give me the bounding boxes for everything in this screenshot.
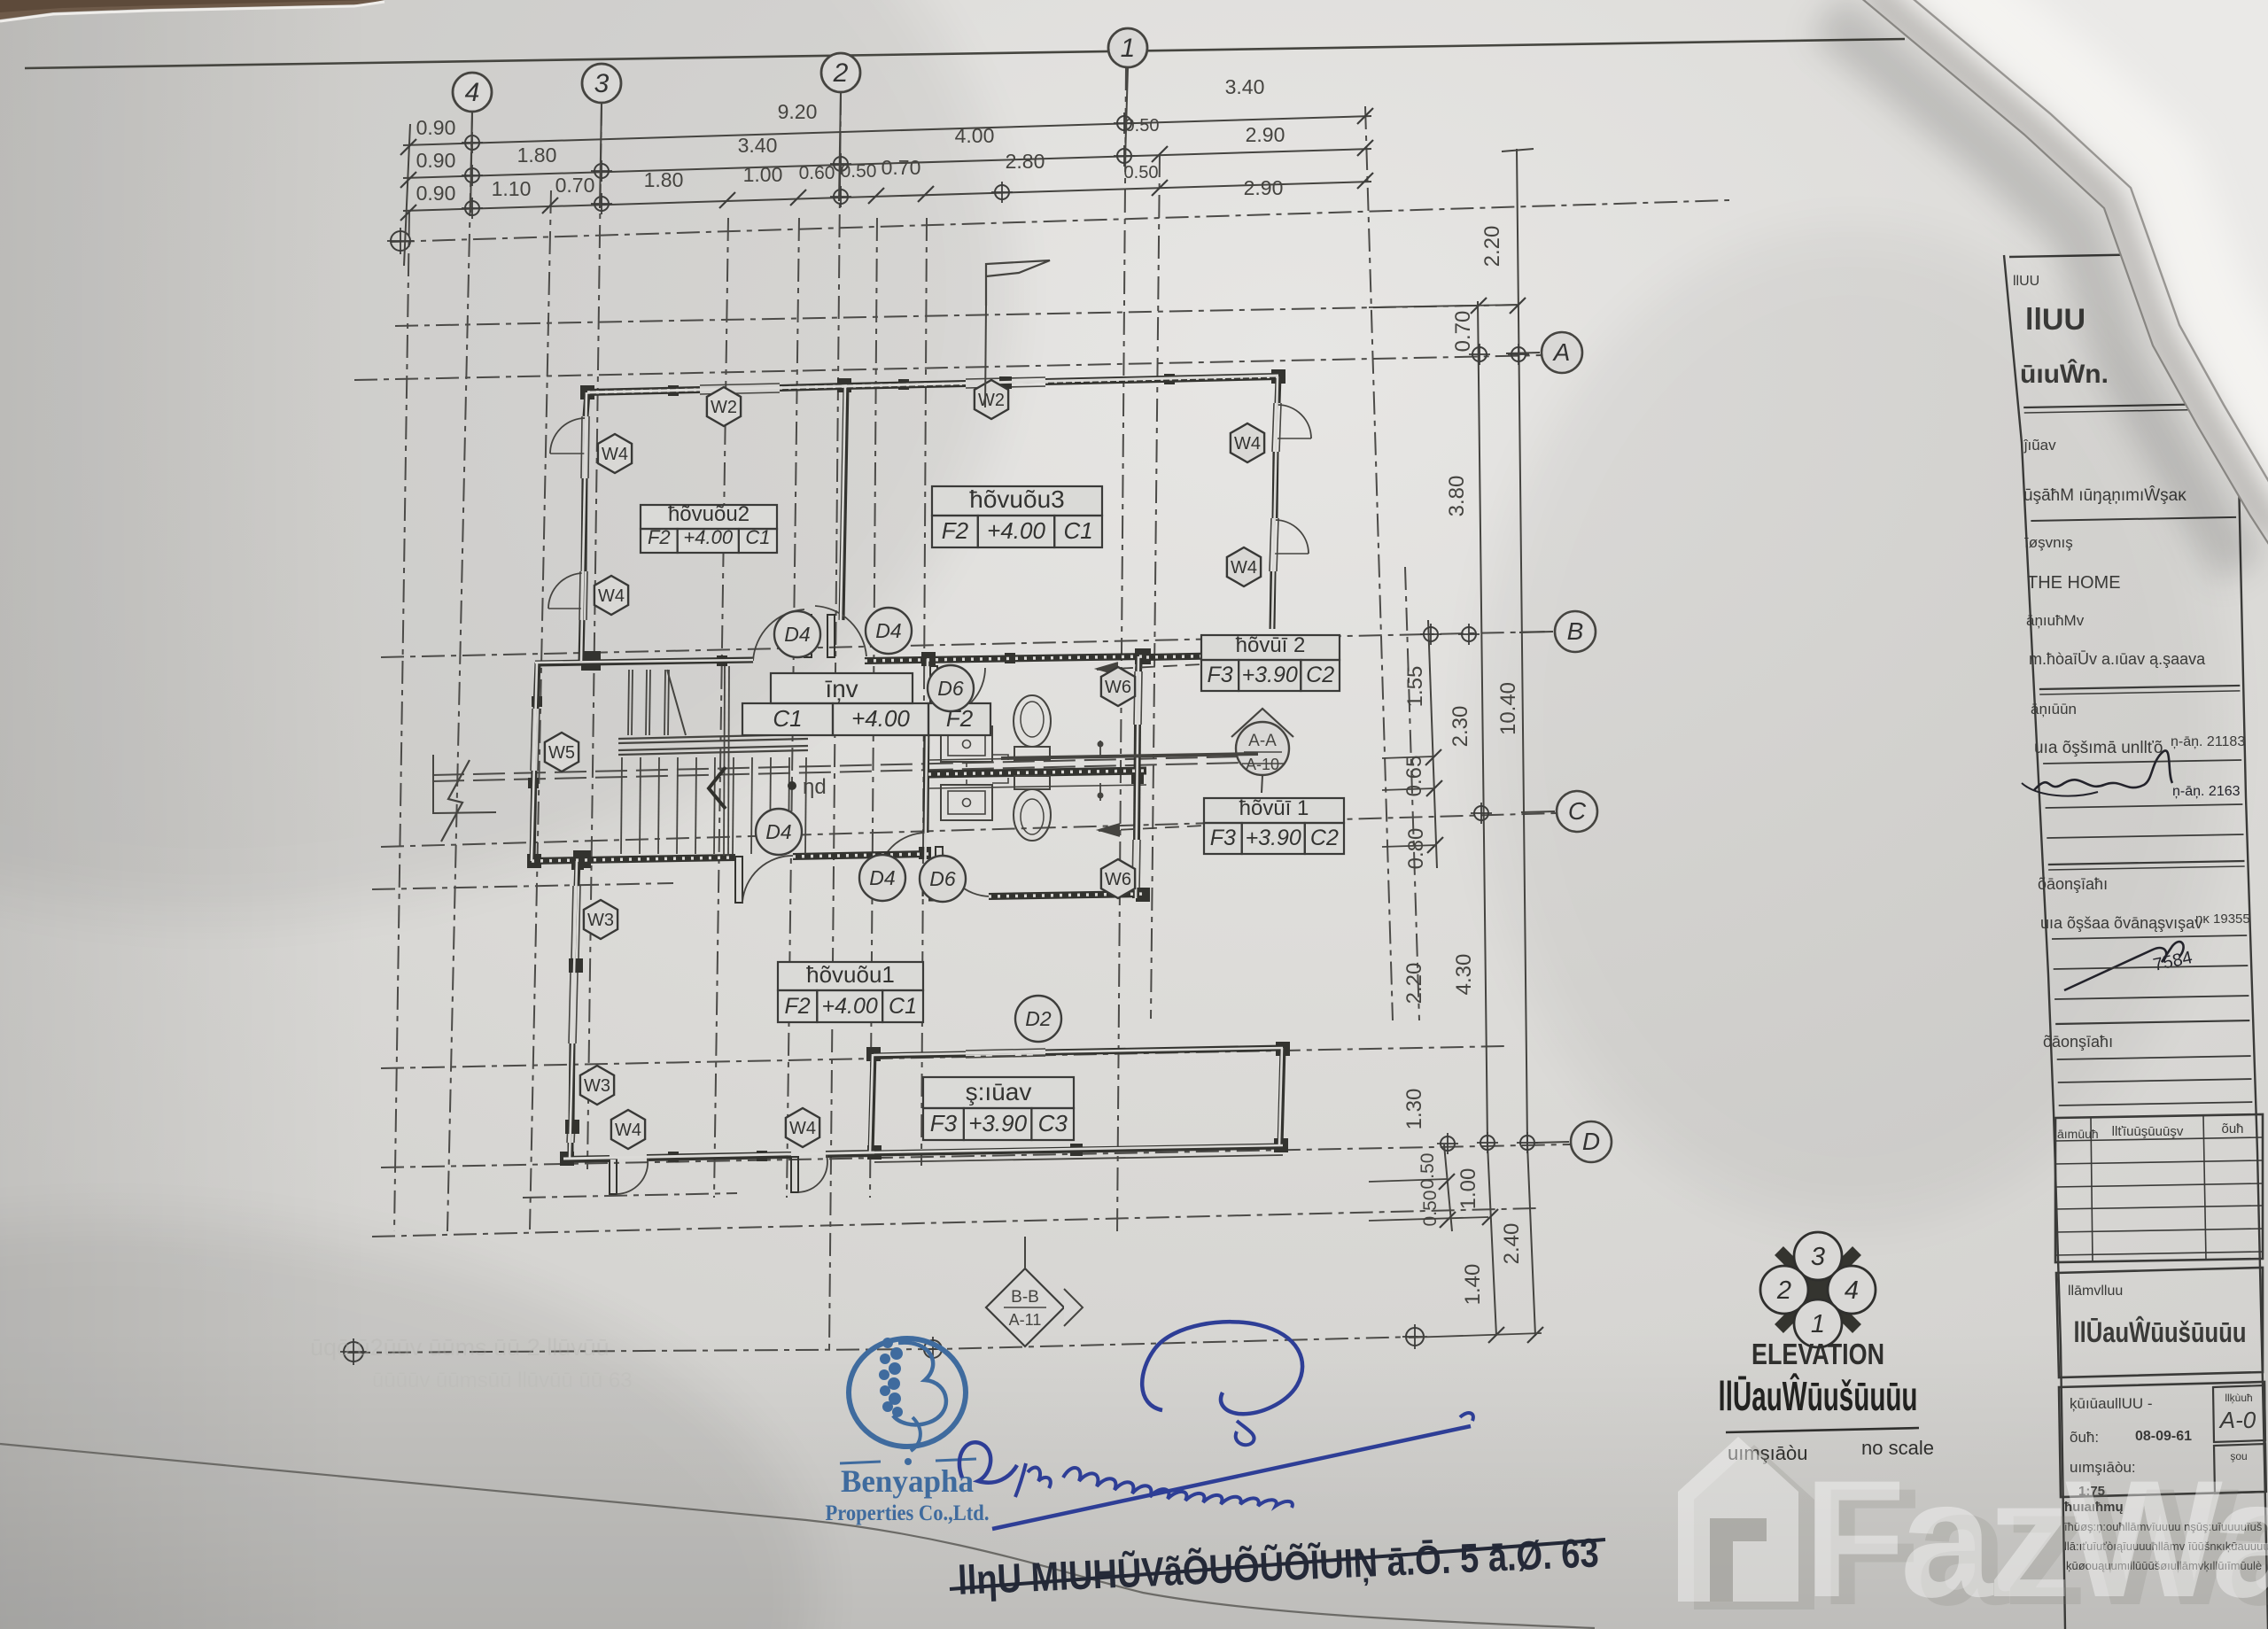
- svg-text:m.ħòaīŪv a.ıūav ą.şaava: m.ħòaīŪv a.ıūav ą.şaava: [2029, 650, 2206, 668]
- svg-text:FazWaz: FazWaz: [1804, 1446, 2268, 1629]
- svg-text:THE HOME: THE HOME: [2027, 573, 2121, 593]
- svg-text:W4: W4: [602, 445, 628, 464]
- svg-text:īņv: īņv: [825, 675, 858, 702]
- svg-text:4: 4: [465, 78, 480, 107]
- svg-text:1.80: 1.80: [644, 168, 684, 191]
- svg-text:08-09-61: 08-09-61: [2135, 1429, 2192, 1444]
- svg-text:W4: W4: [789, 1119, 816, 1138]
- svg-text:īøşvnış: īøşvnış: [2024, 534, 2073, 551]
- svg-text:9.20: 9.20: [778, 100, 818, 123]
- svg-text:2.40: 2.40: [1500, 1223, 1524, 1265]
- svg-text:3.80: 3.80: [1445, 476, 1469, 517]
- svg-text:D6: D6: [929, 867, 956, 890]
- svg-text:W2: W2: [978, 391, 1005, 410]
- svg-text:4: 4: [1845, 1276, 1859, 1305]
- svg-text:0.70: 0.70: [882, 156, 921, 179]
- svg-text:3.40: 3.40: [1225, 75, 1265, 98]
- svg-text:C2: C2: [1306, 663, 1334, 687]
- svg-text:W4: W4: [1234, 434, 1261, 454]
- svg-text:ņ-āņ. 2163: ņ-āņ. 2163: [2172, 784, 2241, 799]
- svg-text:1.40: 1.40: [1461, 1264, 1485, 1306]
- svg-text:A-11: A-11: [1009, 1311, 1042, 1329]
- svg-text:āımūuħ: āımūuħ: [2057, 1127, 2099, 1141]
- svg-text:ņ-āņ. 21183: ņ-āņ. 21183: [2171, 734, 2245, 749]
- svg-text:ķūıūaullUU -: ķūıūaullUU -: [2070, 1395, 2153, 1412]
- svg-text:W6: W6: [1105, 870, 1131, 889]
- svg-text:Benyapha: Benyapha: [841, 1463, 974, 1499]
- svg-text:C3: C3: [1038, 1110, 1068, 1136]
- svg-text:Properties Co.,Ltd.: Properties Co.,Ltd.: [826, 1501, 990, 1525]
- svg-text:+4.00: +4.00: [851, 705, 910, 732]
- svg-text:W3: W3: [587, 911, 614, 930]
- svg-text:+3.90: +3.90: [1246, 826, 1301, 850]
- svg-text:llāmvlluu: llāmvlluu: [2068, 1284, 2123, 1299]
- svg-text:llťīuūşūuūşv: llťīuūşūuūşv: [2112, 1124, 2184, 1139]
- svg-text:D4: D4: [875, 619, 901, 642]
- svg-text:0.70: 0.70: [1451, 311, 1475, 353]
- svg-text:10.40: 10.40: [1496, 682, 1520, 735]
- svg-text:W2: W2: [711, 398, 737, 417]
- svg-text:W5: W5: [548, 743, 575, 763]
- svg-text:0.50: 0.50: [1124, 163, 1159, 182]
- svg-text:0.50: 0.50: [841, 161, 877, 182]
- svg-text:õāonşīaħı: õāonşīaħı: [2038, 875, 2108, 893]
- svg-text:A-0: A-0: [2218, 1407, 2256, 1433]
- svg-text:llŪauŴūušūuūu: llŪauŴūušūuūu: [2074, 1316, 2247, 1348]
- svg-text:0.50: 0.50: [1125, 116, 1160, 136]
- svg-text:3: 3: [594, 69, 610, 98]
- svg-text:0.90: 0.90: [416, 149, 456, 172]
- svg-text:3: 3: [1811, 1243, 1825, 1271]
- svg-text:2.30: 2.30: [1449, 706, 1472, 748]
- svg-text:D4: D4: [765, 820, 791, 843]
- svg-text:F2: F2: [785, 994, 811, 1019]
- svg-text:llŪauŴūušūuūu: llŪauŴūušūuūu: [1719, 1373, 1918, 1419]
- svg-text:+3.90: +3.90: [968, 1110, 1027, 1136]
- svg-text:1: 1: [1811, 1310, 1825, 1338]
- svg-text:0.60: 0.60: [799, 163, 835, 183]
- svg-text:ş:ıūav: ş:ıūav: [966, 1078, 1032, 1105]
- svg-text:2.20: 2.20: [1480, 226, 1504, 268]
- svg-text:W4: W4: [598, 586, 625, 606]
- svg-text:C1: C1: [773, 705, 802, 732]
- svg-text:1: 1: [1121, 34, 1136, 63]
- svg-text:+4.00: +4.00: [683, 526, 733, 548]
- svg-text:2.20: 2.20: [1402, 963, 1426, 1005]
- svg-text:õuħ: õuħ: [2221, 1121, 2243, 1136]
- svg-text:1.80: 1.80: [517, 144, 557, 167]
- svg-text:0.80: 0.80: [1404, 828, 1428, 870]
- svg-text:C1: C1: [1063, 517, 1092, 544]
- svg-text:D: D: [1582, 1128, 1600, 1155]
- svg-text:D4: D4: [784, 623, 810, 646]
- svg-text:1.10: 1.10: [492, 177, 532, 200]
- svg-text:D2: D2: [1025, 1007, 1052, 1030]
- svg-text:0.90: 0.90: [416, 116, 456, 139]
- svg-text:nĸ 19355: nĸ 19355: [2195, 911, 2250, 927]
- svg-text:0.50: 0.50: [1417, 1153, 1438, 1190]
- svg-text:āņıūūn: āņıūūn: [2031, 701, 2077, 718]
- svg-text:ELEVATION: ELEVATION: [1751, 1338, 1884, 1370]
- svg-text:ħõvuõu1: ħõvuõu1: [806, 961, 895, 988]
- svg-text:ūūūūv ūūmsūū llūvūū ūū 63: ūūūūv ūūmsūū llūvūū ūū 63: [372, 1369, 633, 1392]
- svg-text:llUU: llUU: [2013, 274, 2039, 289]
- svg-text:B-B: B-B: [1011, 1288, 1039, 1307]
- svg-text:uıa õşšaa õvānąşvışav: uıa õşšaa õvānąşvışav: [2040, 914, 2202, 932]
- svg-text:ħõvuõu2: ħõvuõu2: [668, 502, 750, 526]
- svg-text:W6: W6: [1105, 678, 1131, 697]
- svg-text:W4: W4: [1231, 558, 1257, 578]
- svg-text:1.00: 1.00: [743, 163, 783, 186]
- svg-text:õāonşīaħı: õāonşīaħı: [2043, 1033, 2113, 1051]
- svg-text:F2: F2: [942, 517, 969, 544]
- svg-text:W4: W4: [615, 1121, 641, 1140]
- svg-text:3.40: 3.40: [738, 134, 778, 157]
- svg-text:D4: D4: [869, 866, 895, 889]
- svg-text:1.30: 1.30: [1402, 1089, 1426, 1130]
- svg-text:0.65: 0.65: [1402, 756, 1426, 797]
- svg-text:1.00: 1.00: [1456, 1168, 1480, 1210]
- svg-text:2.90: 2.90: [1246, 123, 1285, 146]
- svg-text:C2: C2: [1310, 826, 1339, 850]
- svg-text:ηd: ηd: [803, 775, 827, 799]
- svg-text:A: A: [1552, 338, 1571, 366]
- svg-text:2: 2: [1776, 1276, 1791, 1305]
- svg-text:ħõvūī 1: ħõvūī 1: [1239, 796, 1309, 820]
- svg-text:+4.00: +4.00: [987, 517, 1045, 544]
- svg-text:2.80: 2.80: [1006, 150, 1045, 173]
- svg-text:2.90: 2.90: [1244, 176, 1284, 199]
- svg-text:ūqō ū2ūūv ūūms ūū 2 llūvūū: ūqō ū2ūūv ūūms ūū 2 llūvūū: [310, 1334, 610, 1361]
- svg-text:1.55: 1.55: [1403, 666, 1427, 708]
- svg-text:F3: F3: [1210, 826, 1236, 850]
- svg-text:F3: F3: [930, 1110, 958, 1136]
- svg-text:2: 2: [833, 58, 849, 88]
- svg-text:ħõvūī 2: ħõvūī 2: [1236, 633, 1306, 657]
- svg-text:B: B: [1567, 617, 1584, 645]
- svg-text:0.50: 0.50: [1420, 1191, 1441, 1227]
- svg-text:ħõvuõu3: ħõvuõu3: [969, 485, 1064, 513]
- svg-text:4.30: 4.30: [1452, 954, 1476, 996]
- svg-text:D6: D6: [937, 677, 964, 700]
- svg-text:0.90: 0.90: [416, 182, 456, 205]
- svg-text:+4.00: +4.00: [822, 994, 878, 1019]
- svg-text:ıĵıũav: ıĵıũav: [2020, 437, 2056, 454]
- svg-text:C1: C1: [889, 994, 917, 1019]
- svg-text:0.70: 0.70: [555, 174, 595, 197]
- svg-text:F2: F2: [648, 526, 671, 548]
- svg-text:A-A: A-A: [1248, 732, 1277, 750]
- svg-text:W3: W3: [584, 1076, 610, 1096]
- svg-text:uıa õşšımā unllťõ: uıa õşšımā unllťõ: [2034, 739, 2163, 757]
- svg-text:C1: C1: [745, 526, 770, 548]
- svg-text:õuħ:: õuħ:: [2070, 1429, 2099, 1446]
- svg-text:A-10: A-10: [1246, 756, 1279, 773]
- svg-text:C: C: [1568, 797, 1587, 825]
- svg-text:F3: F3: [1207, 663, 1232, 687]
- svg-text:+3.90: +3.90: [1242, 663, 1298, 687]
- svg-text:āņıuħMv: āņıuħMv: [2026, 612, 2085, 629]
- svg-text:llķùuħ: llķùuħ: [2225, 1392, 2252, 1404]
- svg-text:4.00: 4.00: [955, 124, 995, 147]
